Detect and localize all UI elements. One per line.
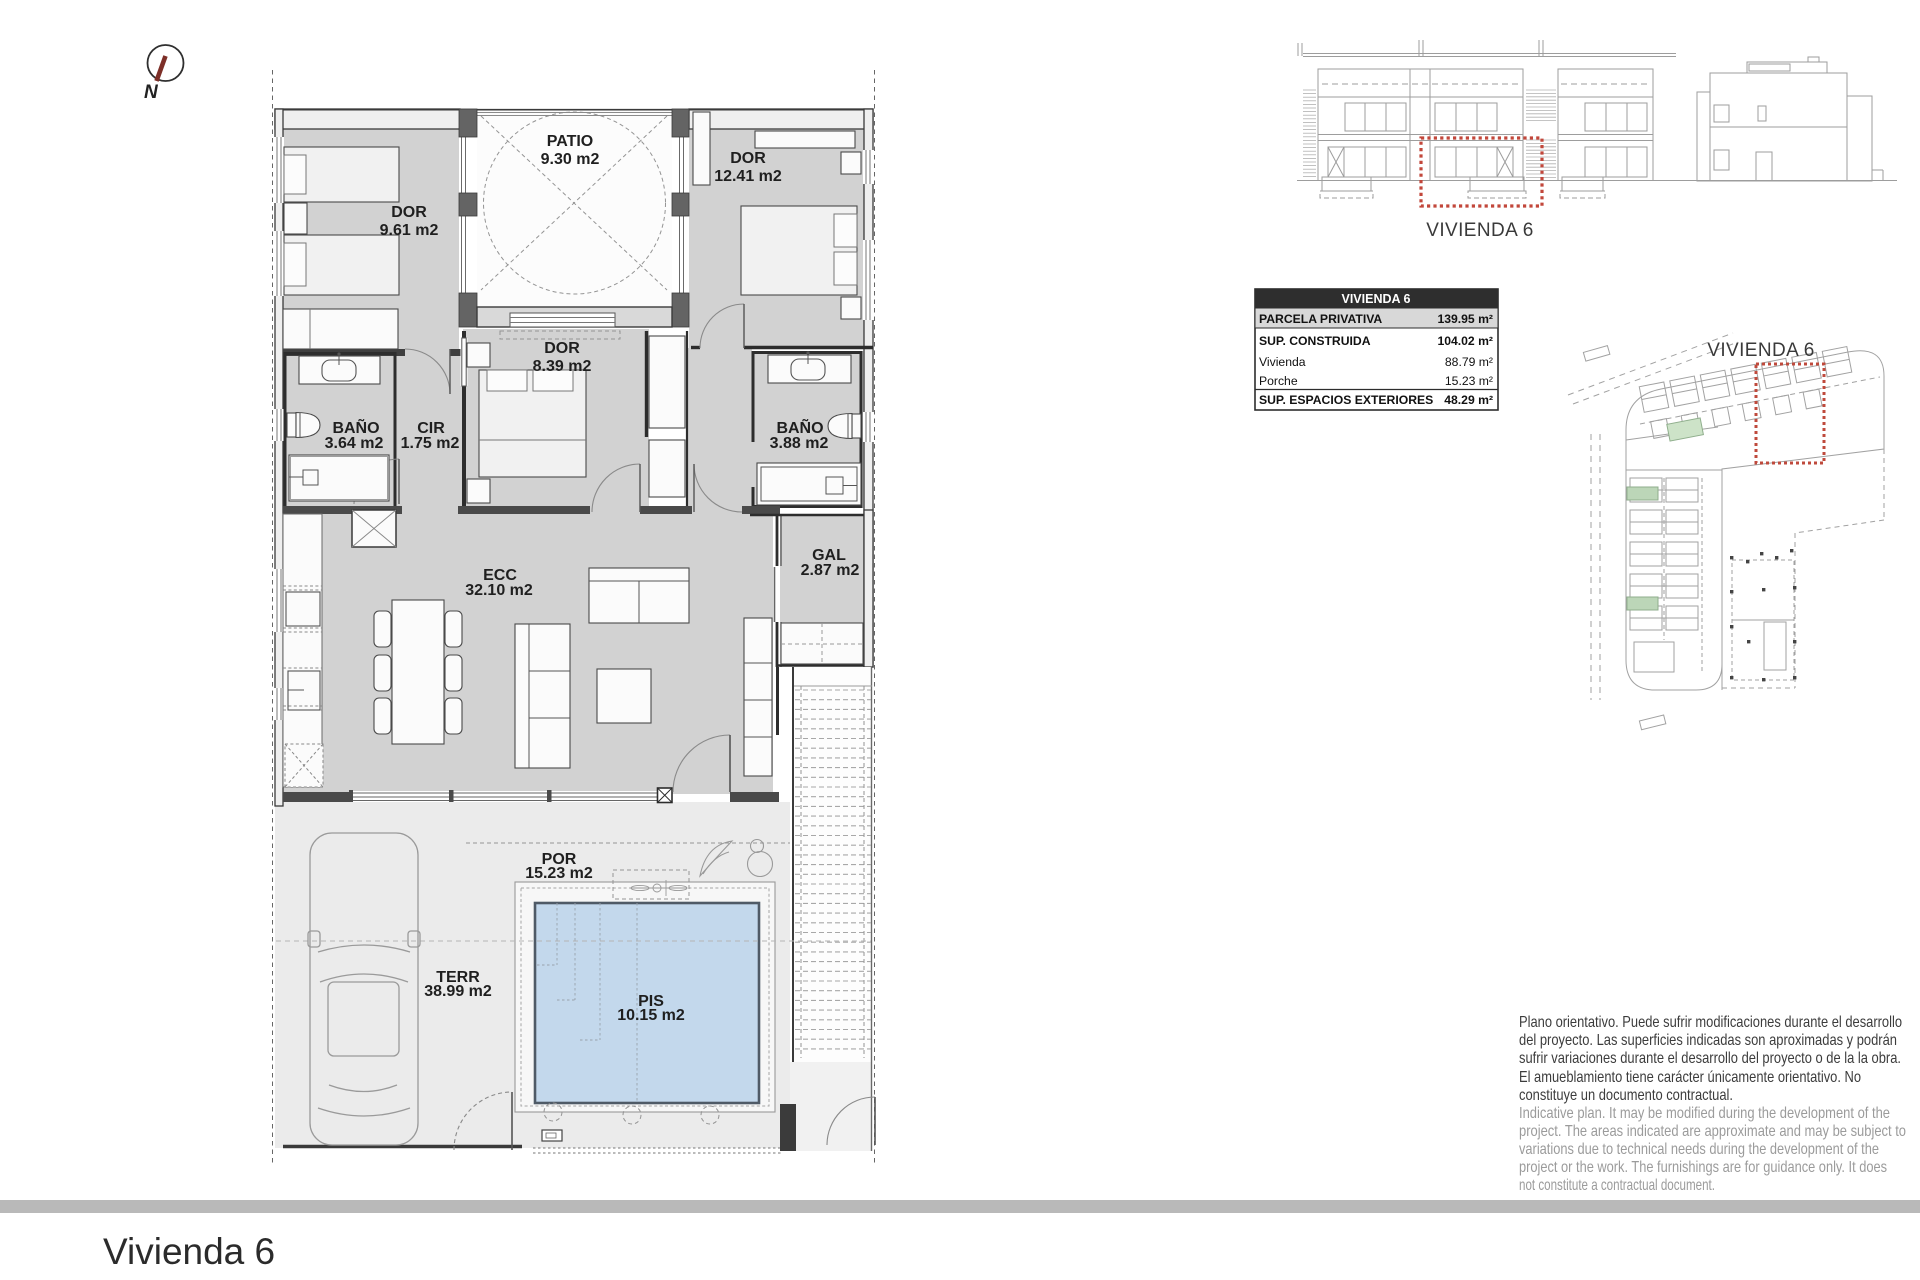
svg-text:9.30 m2: 9.30 m2 xyxy=(541,151,600,168)
svg-text:12.41 m2: 12.41 m2 xyxy=(714,168,782,185)
svg-text:DOR: DOR xyxy=(391,204,427,221)
svg-text:38.99 m2: 38.99 m2 xyxy=(424,983,492,1000)
svg-text:8.39 m2: 8.39 m2 xyxy=(533,358,592,375)
svg-text:48.29 m²: 48.29 m² xyxy=(1444,393,1493,407)
svg-text:Indicative plan. It may be mod: Indicative plan. It may be modified duri… xyxy=(1519,1105,1890,1122)
svg-text:10.15 m2: 10.15 m2 xyxy=(617,1007,685,1024)
svg-text:BAÑO: BAÑO xyxy=(332,417,379,437)
svg-text:Porche: Porche xyxy=(1259,374,1298,388)
svg-text:sufrir variaciones durante el: sufrir variaciones durante el desarrollo… xyxy=(1519,1050,1901,1067)
svg-text:SUP. ESPACIOS EXTERIORES: SUP. ESPACIOS EXTERIORES xyxy=(1259,393,1433,407)
svg-text:9.61 m2: 9.61 m2 xyxy=(380,222,439,239)
svg-text:VIVIENDA 6: VIVIENDA 6 xyxy=(1341,292,1410,306)
svg-text:PARCELA PRIVATIVA: PARCELA PRIVATIVA xyxy=(1259,312,1382,326)
svg-text:1.75 m2: 1.75 m2 xyxy=(401,435,460,452)
svg-text:3.88 m2: 3.88 m2 xyxy=(770,435,829,452)
svg-text:BAÑO: BAÑO xyxy=(776,417,823,437)
svg-text:constituye un documento contra: constituye un documento contractual. xyxy=(1519,1087,1733,1104)
svg-text:del proyecto. Las superficies: del proyecto. Las superficies indicadas … xyxy=(1519,1032,1897,1049)
svg-text:VIVIENDA 6: VIVIENDA 6 xyxy=(1707,340,1815,361)
svg-text:N: N xyxy=(144,82,159,103)
svg-text:VIVIENDA 6: VIVIENDA 6 xyxy=(1426,220,1534,241)
svg-text:3.64 m2: 3.64 m2 xyxy=(325,435,384,452)
svg-text:variations due to technical ne: variations due to technical needs during… xyxy=(1519,1141,1879,1158)
svg-text:SUP. CONSTRUIDA: SUP. CONSTRUIDA xyxy=(1259,334,1371,348)
svg-text:88.79 m²: 88.79 m² xyxy=(1445,355,1493,369)
svg-text:project or the work. The furni: project or the work. The furnishings are… xyxy=(1519,1159,1887,1176)
svg-text:El amueblamiento tiene carácte: El amueblamiento tiene carácter únicamen… xyxy=(1519,1069,1861,1086)
svg-text:project. The areas indicated a: project. The areas indicated are approxi… xyxy=(1519,1123,1906,1140)
svg-text:DOR: DOR xyxy=(544,340,580,357)
svg-text:Plano orientativo. Puede sufri: Plano orientativo. Puede sufrir modifica… xyxy=(1519,1014,1902,1031)
svg-text:15.23 m²: 15.23 m² xyxy=(1445,374,1493,388)
svg-text:104.02 m²: 104.02 m² xyxy=(1437,334,1493,348)
svg-text:DOR: DOR xyxy=(730,150,766,167)
svg-text:Vivienda: Vivienda xyxy=(1259,355,1306,369)
svg-text:not constitute a contractual d: not constitute a contractual document. xyxy=(1519,1177,1715,1194)
svg-text:139.95 m²: 139.95 m² xyxy=(1437,312,1493,326)
svg-text:PATIO: PATIO xyxy=(547,133,594,150)
svg-text:32.10 m2: 32.10 m2 xyxy=(465,582,533,599)
svg-text:Vivienda 6: Vivienda 6 xyxy=(103,1231,275,1272)
svg-text:15.23 m2: 15.23 m2 xyxy=(525,865,593,882)
svg-text:2.87 m2: 2.87 m2 xyxy=(801,562,860,579)
